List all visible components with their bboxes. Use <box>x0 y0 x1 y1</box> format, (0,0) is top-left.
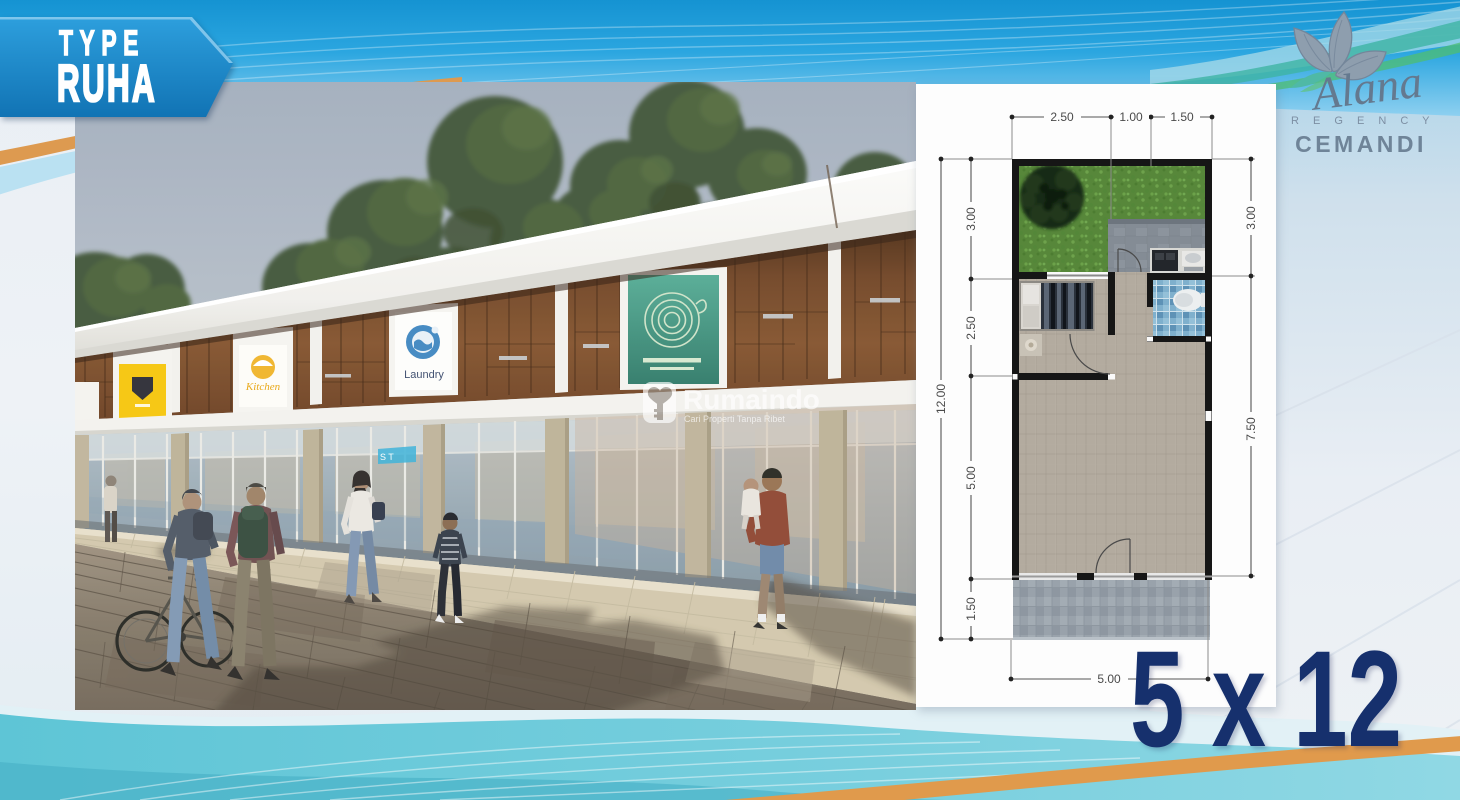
svg-text:Rumaindo: Rumaindo <box>683 384 820 415</box>
svg-text:3.00: 3.00 <box>1244 206 1258 230</box>
svg-text:R E G E N C Y: R E G E N C Y <box>1291 115 1435 127</box>
svg-text:1.50: 1.50 <box>1170 110 1194 124</box>
svg-text:1.50: 1.50 <box>964 597 978 621</box>
svg-text:RUHA: RUHA <box>57 55 157 113</box>
svg-text:2.50: 2.50 <box>964 316 978 340</box>
svg-text:1.00: 1.00 <box>1119 110 1143 124</box>
svg-text:5.00: 5.00 <box>964 466 978 490</box>
svg-text:12.00: 12.00 <box>934 384 948 414</box>
svg-text:Cari Properti Tanpa Ribet: Cari Properti Tanpa Ribet <box>684 414 785 424</box>
svg-text:5.00: 5.00 <box>1097 672 1121 686</box>
svg-text:2.50: 2.50 <box>1050 110 1074 124</box>
svg-text:7.50: 7.50 <box>1244 417 1258 441</box>
svg-text:CEMANDI: CEMANDI <box>1295 131 1427 157</box>
svg-text:5 x 12: 5 x 12 <box>1130 630 1402 760</box>
svg-text:3.00: 3.00 <box>964 207 978 231</box>
